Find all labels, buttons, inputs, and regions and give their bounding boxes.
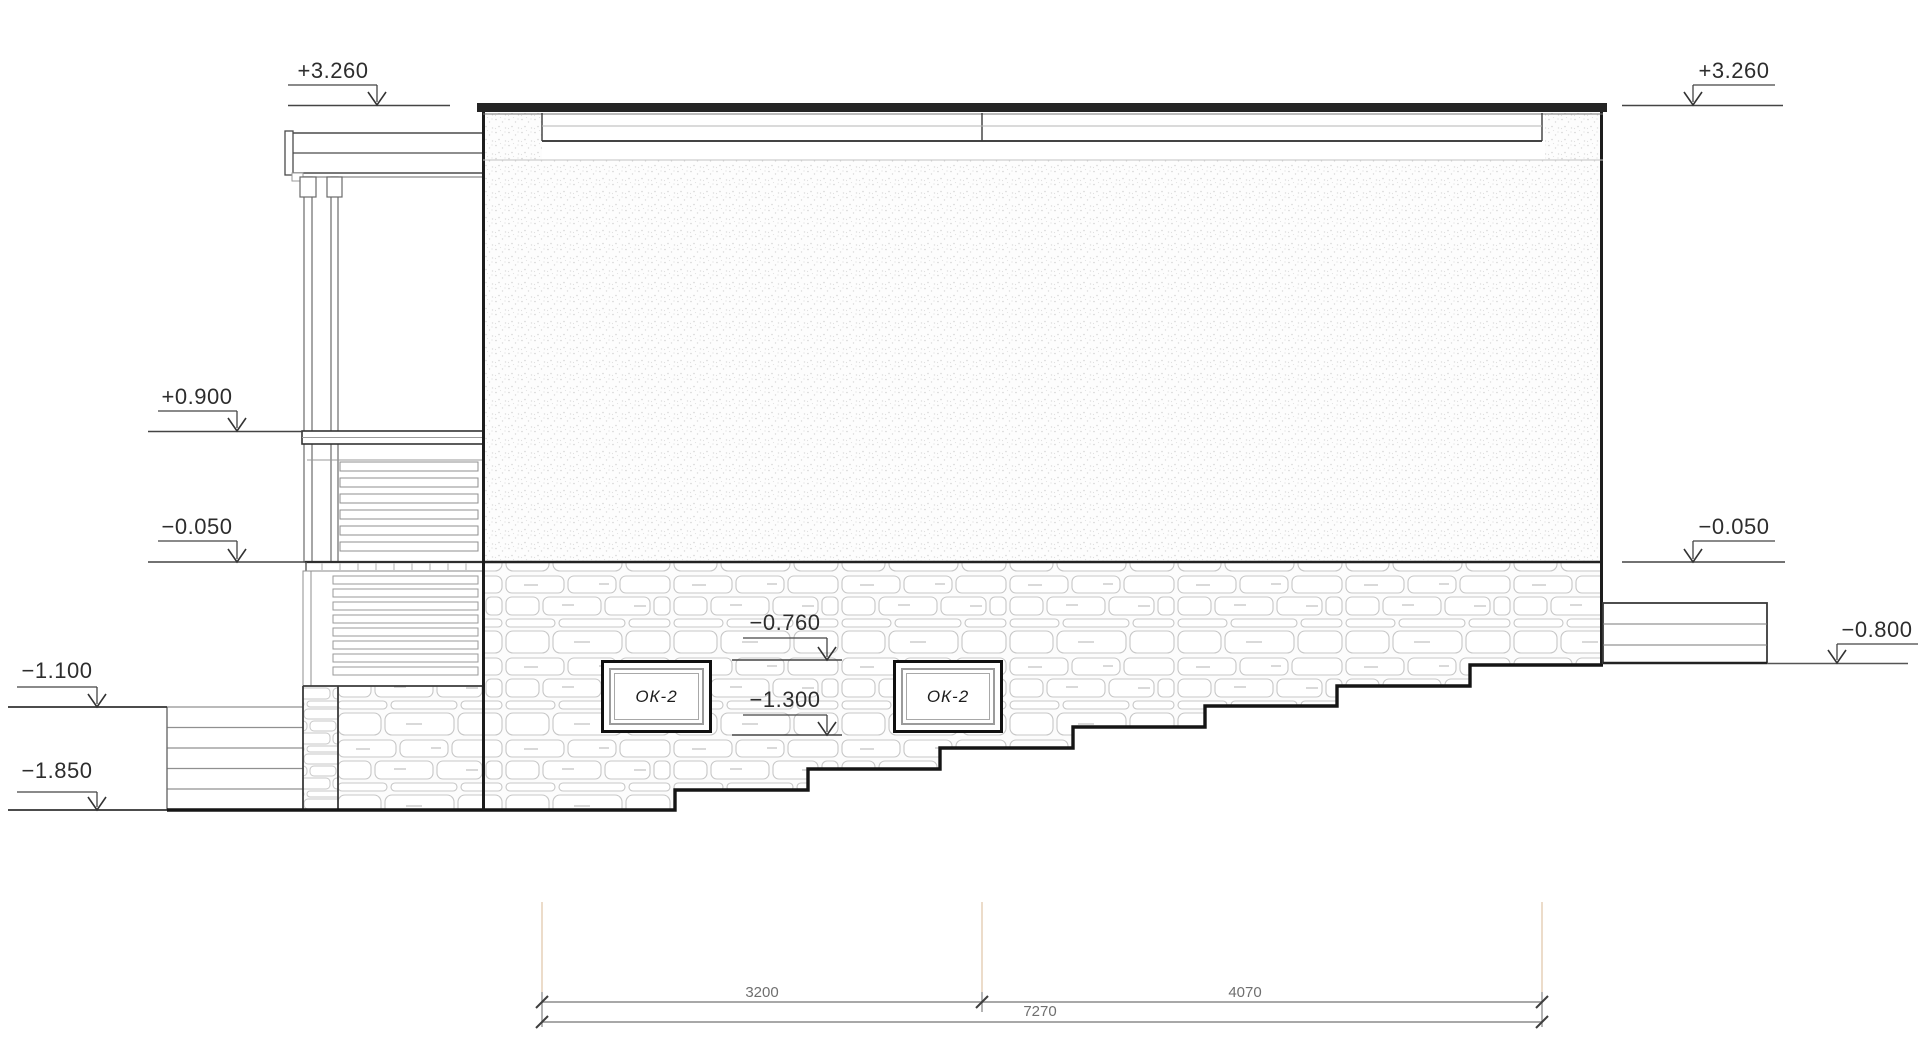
window-label: ОК-2 — [635, 687, 677, 707]
dimension-segment-right: 4070 — [1228, 984, 1261, 1001]
window-label: ОК-2 — [927, 687, 969, 707]
right-steps-block — [1603, 603, 1767, 663]
porch-roof — [285, 131, 483, 181]
elevation-mark-window-bottom: −1.300 — [750, 687, 821, 713]
window-frame-inner: ОК-2 — [614, 673, 699, 720]
window-frame-inner: ОК-2 — [906, 673, 990, 720]
window-frame-middle: ОК-2 — [901, 668, 995, 725]
entry-stairs — [167, 707, 303, 810]
stucco-wall-texture — [483, 113, 1603, 562]
porch-skirt — [303, 571, 478, 686]
elevation-mark-floor-left: −0.050 — [162, 514, 233, 540]
drawing-linework — [0, 0, 1920, 1045]
roof-cap-fascia — [477, 103, 1607, 160]
porch-railing — [302, 431, 483, 551]
porch-posts — [300, 177, 342, 562]
elevation-drawing: +3.260 +0.900 −0.050 −1.100 −1.850 −0.76… — [0, 0, 1920, 1045]
elevation-mark-ground-right: −0.800 — [1842, 617, 1913, 643]
window-frame-middle: ОК-2 — [609, 668, 704, 725]
elevation-mark-top-right: +3.260 — [1699, 58, 1770, 84]
window-tag-right: ОК-2 — [893, 660, 1003, 733]
window-tag-left: ОК-2 — [601, 660, 712, 733]
elevation-mark-ground-left-upper: −1.100 — [22, 658, 93, 684]
dimension-segment-left: 3200 — [745, 984, 778, 1001]
elevation-mark-ground-left-lower: −1.850 — [22, 758, 93, 784]
elevation-mark-railing: +0.900 — [162, 384, 233, 410]
elevation-mark-window-top: −0.760 — [750, 610, 821, 636]
porch-deck — [305, 562, 483, 571]
elevation-mark-floor-right: −0.050 — [1699, 514, 1770, 540]
elevation-mark-top-left: +3.260 — [298, 58, 369, 84]
dimension-total: 7270 — [1023, 1003, 1056, 1020]
